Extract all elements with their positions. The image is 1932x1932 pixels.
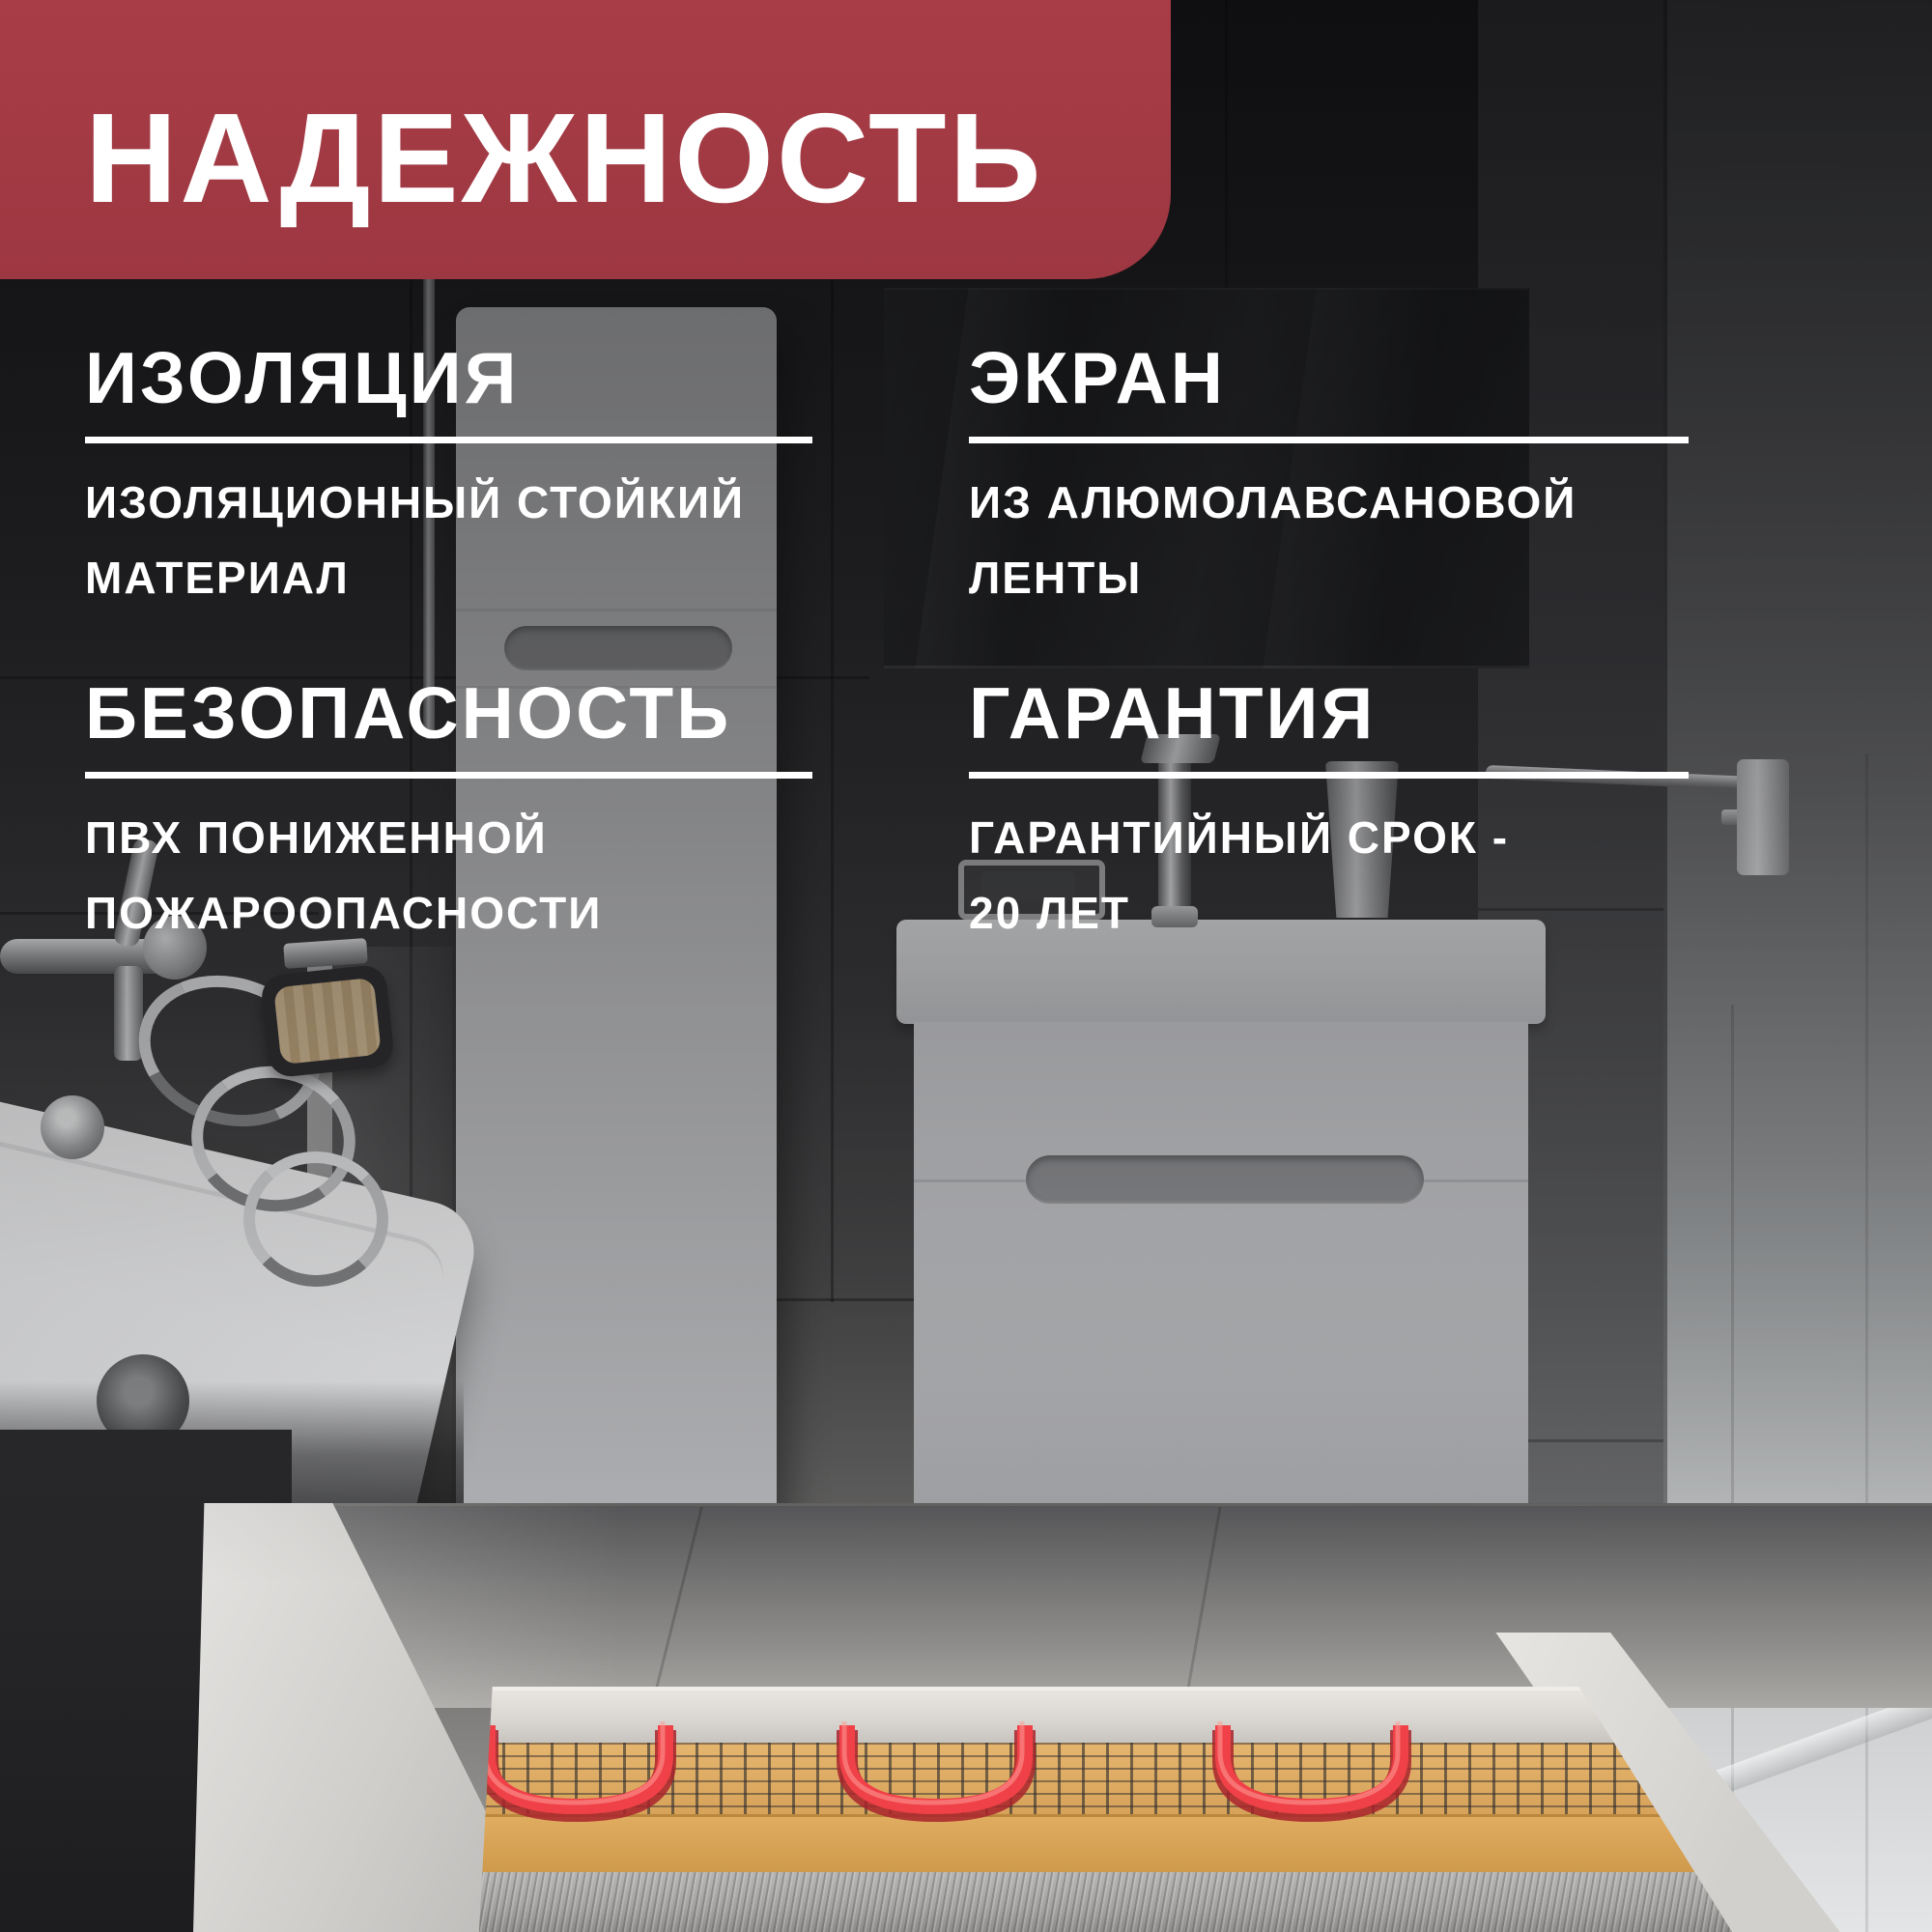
body-line: ИЗ АЛЮМОЛАВСАНОВОЙ	[969, 465, 1689, 540]
section-underline	[85, 772, 812, 779]
section-warranty: ГАРАНТИЯ ГАРАНТИЙНЫЙ СРОК - 20 ЛЕТ	[969, 677, 1689, 951]
section-underline	[85, 437, 812, 443]
dark-overlay	[0, 0, 1932, 1932]
section-title: БЕЗОПАСНОСТЬ	[85, 677, 812, 750]
body-line: МАТЕРИАЛ	[85, 540, 812, 615]
section-body: ГАРАНТИЙНЫЙ СРОК - 20 ЛЕТ	[969, 800, 1689, 951]
body-line: 20 ЛЕТ	[969, 875, 1689, 951]
body-line: ГАРАНТИЙНЫЙ СРОК -	[969, 800, 1689, 875]
section-underline	[969, 772, 1689, 779]
section-body: ПВХ ПОНИЖЕННОЙ ПОЖАРООПАСНОСТИ	[85, 800, 812, 951]
page-title: НАДЕЖНОСТЬ	[85, 95, 1043, 222]
section-title: ИЗОЛЯЦИЯ	[85, 342, 812, 414]
section-body: ИЗ АЛЮМОЛАВСАНОВОЙ ЛЕНТЫ	[969, 465, 1689, 615]
section-insulation: ИЗОЛЯЦИЯ ИЗОЛЯЦИОННЫЙ СТОЙКИЙ МАТЕРИАЛ	[85, 342, 812, 615]
infographic-reliability: НАДЕЖНОСТЬ ИЗОЛЯЦИЯ ИЗОЛЯЦИОННЫЙ СТОЙКИЙ…	[0, 0, 1932, 1932]
section-safety: БЕЗОПАСНОСТЬ ПВХ ПОНИЖЕННОЙ ПОЖАРООПАСНО…	[85, 677, 812, 951]
body-line: ПОЖАРООПАСНОСТИ	[85, 875, 812, 951]
section-body: ИЗОЛЯЦИОННЫЙ СТОЙКИЙ МАТЕРИАЛ	[85, 465, 812, 615]
body-line: ПВХ ПОНИЖЕННОЙ	[85, 800, 812, 875]
section-underline	[969, 437, 1689, 443]
section-title: ГАРАНТИЯ	[969, 677, 1689, 750]
body-line: ИЗОЛЯЦИОННЫЙ СТОЙКИЙ	[85, 465, 812, 540]
body-line: ЛЕНТЫ	[969, 540, 1689, 615]
section-screen: ЭКРАН ИЗ АЛЮМОЛАВСАНОВОЙ ЛЕНТЫ	[969, 342, 1689, 615]
section-title: ЭКРАН	[969, 342, 1689, 414]
